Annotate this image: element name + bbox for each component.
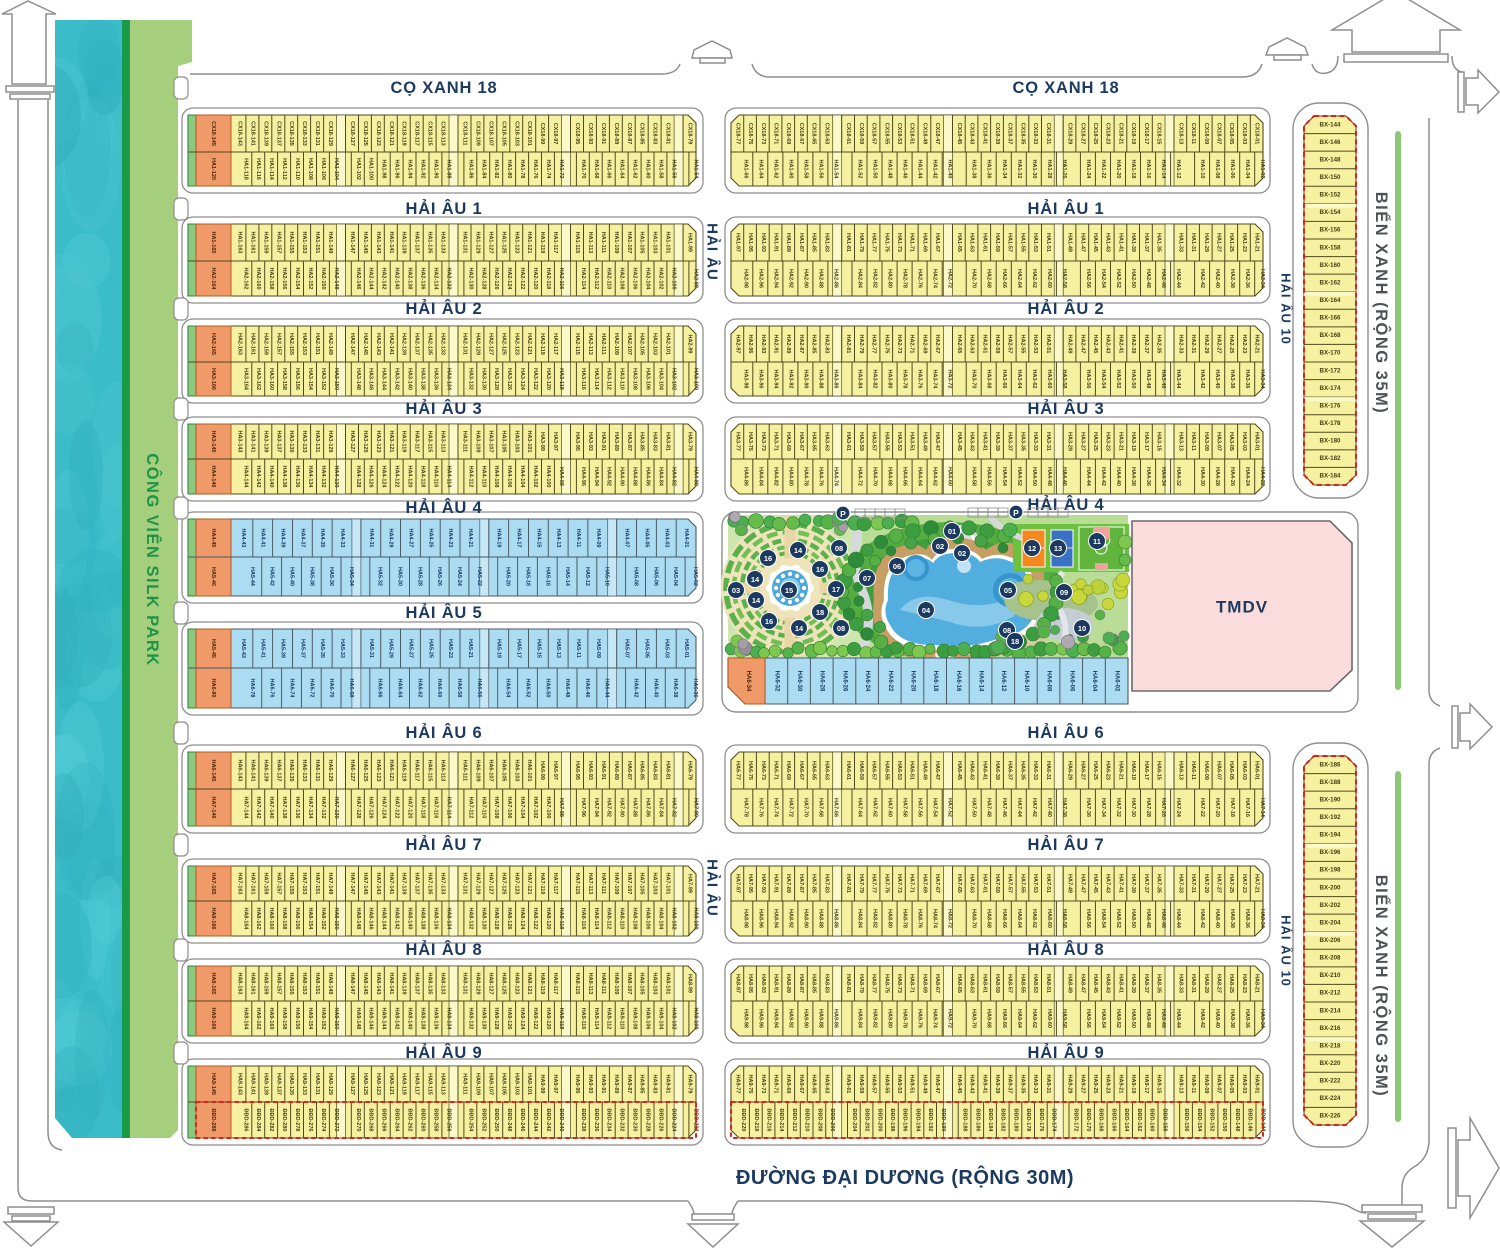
- svg-text:HA4-07: HA4-07: [624, 529, 630, 548]
- svg-text:HA1-83: HA1-83: [823, 233, 829, 252]
- svg-text:HA9-46: HA9-46: [1160, 1009, 1166, 1028]
- svg-text:HA3-90: HA3-90: [802, 370, 808, 389]
- svg-text:HA8-76: HA8-76: [917, 909, 923, 928]
- svg-text:HA5-22: HA5-22: [476, 567, 482, 586]
- svg-text:HA4-132: HA4-132: [320, 465, 326, 487]
- svg-text:HA9-11: HA9-11: [1190, 1075, 1196, 1094]
- svg-text:BX-220: BX-220: [1320, 1060, 1342, 1067]
- svg-text:HA1-62: HA1-62: [632, 160, 638, 179]
- svg-text:HA7-140: HA7-140: [268, 796, 274, 818]
- svg-text:HA5-06: HA5-06: [652, 567, 658, 586]
- svg-text:02: 02: [936, 542, 944, 551]
- svg-text:HA9-129: HA9-129: [327, 1073, 333, 1095]
- svg-text:HA9-57: HA9-57: [871, 1075, 877, 1094]
- svg-text:HA9-141: HA9-141: [249, 1073, 255, 1095]
- svg-text:HA1-33: HA1-33: [1177, 233, 1183, 252]
- svg-text:BX-158: BX-158: [1320, 244, 1342, 251]
- svg-text:HA2-88: HA2-88: [817, 269, 823, 288]
- svg-text:HA7-62: HA7-62: [872, 798, 878, 817]
- svg-text:HA1-74: HA1-74: [545, 160, 551, 180]
- svg-text:HA1-93: HA1-93: [760, 233, 766, 252]
- svg-text:HA9-17: HA9-17: [1143, 1075, 1149, 1094]
- svg-text:HA7-82: HA7-82: [670, 798, 676, 817]
- svg-text:HA9-110: HA9-110: [619, 1008, 625, 1030]
- svg-text:HA7-27: HA7-27: [1216, 874, 1222, 893]
- svg-text:HA3-80: HA3-80: [887, 370, 893, 389]
- svg-text:HA4-42: HA4-42: [1100, 467, 1106, 486]
- svg-text:BX-184: BX-184: [1320, 473, 1342, 480]
- svg-text:HA8-161: HA8-161: [249, 972, 255, 994]
- svg-text:HA4-116: HA4-116: [432, 466, 438, 488]
- svg-text:HA4-26: HA4-26: [1229, 467, 1235, 486]
- svg-text:HA1-34: HA1-34: [1001, 160, 1007, 180]
- svg-text:HA7-97: HA7-97: [734, 874, 740, 893]
- svg-text:HA7-112: HA7-112: [467, 797, 473, 819]
- svg-text:HA3-01: HA3-01: [1254, 432, 1260, 451]
- svg-text:HA7-21: HA7-21: [1254, 874, 1260, 893]
- svg-text:CX18-47: CX18-47: [934, 123, 940, 145]
- svg-text:HA2-25: HA2-25: [1228, 335, 1234, 354]
- svg-text:HA9-102: HA9-102: [670, 1007, 676, 1029]
- svg-text:HA8-67: HA8-67: [934, 974, 940, 993]
- svg-text:HA6-07: HA6-07: [1216, 761, 1222, 780]
- svg-text:HA2-115: HA2-115: [574, 333, 580, 355]
- svg-text:BX-168: BX-168: [1320, 332, 1342, 339]
- svg-text:CX18-27: CX18-27: [1079, 123, 1085, 145]
- svg-text:HA9-13: HA9-13: [1177, 1075, 1183, 1094]
- svg-text:HA1-66: HA1-66: [742, 160, 748, 179]
- svg-text:HA8-143: HA8-143: [375, 972, 381, 994]
- svg-text:HA2-29: HA2-29: [1203, 335, 1209, 354]
- svg-text:HA6-51: HA6-51: [909, 761, 915, 780]
- svg-text:HA9-140: HA9-140: [407, 1007, 413, 1029]
- svg-text:HA9-70: HA9-70: [971, 1009, 977, 1028]
- svg-text:HA8-126: HA8-126: [506, 907, 512, 929]
- svg-text:HA5-25: HA5-25: [427, 639, 433, 658]
- svg-text:HA7-139: HA7-139: [401, 872, 407, 894]
- svg-text:HA4-21: HA4-21: [467, 529, 473, 548]
- svg-text:HA9-106: HA9-106: [645, 1007, 651, 1029]
- svg-text:HA3-55: HA3-55: [883, 432, 889, 451]
- svg-text:HA7-90: HA7-90: [619, 798, 625, 817]
- svg-text:HA7-39: HA7-39: [1130, 874, 1136, 893]
- svg-text:HA1-153: HA1-153: [301, 231, 307, 253]
- svg-text:HA5-36: HA5-36: [328, 567, 334, 586]
- svg-text:HA6-105: HA6-105: [500, 759, 506, 781]
- svg-text:HA6-38: HA6-38: [672, 679, 678, 698]
- svg-text:HA4-66: HA4-66: [902, 467, 908, 486]
- svg-text:HA3-41: HA3-41: [981, 432, 987, 451]
- svg-text:09: 09: [1060, 588, 1068, 597]
- svg-text:HA8-80: HA8-80: [887, 909, 893, 928]
- svg-text:HA6-60: HA6-60: [436, 679, 442, 698]
- svg-text:HA1-73: HA1-73: [896, 233, 902, 252]
- svg-text:HA4-64: HA4-64: [917, 467, 923, 487]
- svg-text:HA8-148: HA8-148: [355, 907, 361, 929]
- svg-text:HA4-128: HA4-128: [355, 465, 361, 487]
- svg-text:HA1-71: HA1-71: [909, 233, 915, 252]
- svg-text:HA9-113: HA9-113: [440, 1073, 446, 1095]
- svg-text:HA4-46: HA4-46: [1061, 467, 1067, 486]
- svg-text:HA6-72: HA6-72: [308, 679, 314, 698]
- svg-text:HA6-43: HA6-43: [969, 761, 975, 780]
- svg-text:HA7-100: HA7-100: [545, 796, 551, 818]
- svg-text:HA8-84: HA8-84: [857, 909, 863, 929]
- svg-text:HA3-43: HA3-43: [969, 432, 975, 451]
- svg-text:HA3-56: HA3-56: [1085, 370, 1091, 389]
- svg-text:HA8-163: HA8-163: [237, 972, 243, 994]
- svg-text:HA3-95: HA3-95: [574, 432, 580, 451]
- svg-text:HA4-104: HA4-104: [519, 465, 525, 488]
- svg-text:HA3-29: HA3-29: [1067, 432, 1073, 451]
- svg-text:HA1-111: HA1-111: [600, 232, 606, 253]
- svg-text:HA3-124: HA3-124: [519, 368, 525, 391]
- svg-text:ĐĐD-278: ĐĐD-278: [294, 1109, 300, 1132]
- svg-text:HẢI ÂU 4: HẢI ÂU 4: [406, 498, 483, 517]
- svg-text:CX18-119: CX18-119: [401, 121, 407, 145]
- svg-text:13: 13: [1054, 544, 1062, 553]
- svg-text:HA3-25: HA3-25: [1092, 432, 1098, 451]
- svg-text:HA7-31: HA7-31: [1190, 874, 1196, 893]
- svg-text:HA6-70: HA6-70: [328, 679, 334, 698]
- svg-text:ĐĐD-272: ĐĐD-272: [333, 1109, 339, 1132]
- svg-text:HA7-151: HA7-151: [314, 872, 320, 894]
- svg-text:HA3-164: HA3-164: [242, 368, 248, 391]
- svg-text:CX18-55: CX18-55: [883, 123, 889, 145]
- svg-text:HA3-117: HA3-117: [414, 431, 420, 453]
- svg-text:HA5-37: HA5-37: [299, 639, 305, 658]
- svg-text:HA7-78: HA7-78: [742, 798, 748, 817]
- svg-text:HA2-165: HA2-165: [210, 333, 216, 355]
- svg-text:HA8-79: HA8-79: [858, 974, 864, 993]
- svg-text:HA1-25: HA1-25: [1228, 233, 1234, 252]
- svg-text:HA9-87: HA9-87: [626, 1075, 632, 1094]
- svg-text:ĐĐD-246: ĐĐD-246: [519, 1109, 525, 1132]
- svg-text:HA1-24: HA1-24: [1085, 160, 1091, 180]
- svg-text:HA1-67: HA1-67: [934, 233, 940, 252]
- svg-text:HA5-35: HA5-35: [319, 639, 325, 658]
- svg-text:CX18-49: CX18-49: [921, 123, 927, 145]
- svg-text:HA9-105: HA9-105: [500, 1073, 506, 1095]
- svg-text:HA2-150: HA2-150: [320, 267, 326, 289]
- svg-text:HA9-148: HA9-148: [355, 1007, 361, 1029]
- svg-text:HA2-130: HA2-130: [467, 267, 473, 289]
- svg-text:HA3-98: HA3-98: [742, 370, 748, 389]
- svg-text:HA4-05: HA4-05: [644, 529, 650, 548]
- svg-text:HA8-144: HA8-144: [381, 907, 387, 930]
- svg-text:HA2-85: HA2-85: [811, 335, 817, 354]
- svg-text:HA2-33: HA2-33: [1177, 335, 1183, 354]
- svg-text:HA4-136: HA4-136: [294, 465, 300, 487]
- svg-text:BIỂN XANH (RỘNG 35M): BIỂN XANH (RỘNG 35M): [1372, 192, 1391, 415]
- svg-text:HA7-87: HA7-87: [798, 874, 804, 893]
- svg-text:HA8-43: HA8-43: [1105, 974, 1111, 993]
- svg-text:BX-216: BX-216: [1320, 1025, 1342, 1032]
- svg-text:HA8-103: HA8-103: [652, 972, 658, 994]
- svg-text:HA3-146: HA3-146: [368, 368, 374, 390]
- svg-text:HA9-150: HA9-150: [333, 1007, 339, 1029]
- svg-text:ĐĐD-252: ĐĐD-252: [480, 1109, 486, 1132]
- svg-text:HA2-125: HA2-125: [500, 333, 506, 355]
- svg-text:HA9-25: HA9-25: [1092, 1075, 1098, 1094]
- svg-text:HA7-111: HA7-111: [600, 873, 606, 894]
- svg-text:HA3-23: HA3-23: [1105, 432, 1111, 451]
- svg-text:HA8-160: HA8-160: [268, 907, 274, 929]
- svg-text:HA6-15: HA6-15: [1156, 761, 1162, 780]
- svg-text:HA6-87: HA6-87: [626, 761, 632, 780]
- svg-text:HA8-100: HA8-100: [692, 907, 698, 929]
- svg-text:ĐĐD-210: ĐĐD-210: [804, 1109, 810, 1132]
- svg-text:HA3-107: HA3-107: [487, 430, 493, 452]
- svg-text:HA5-03: HA5-03: [663, 639, 669, 658]
- svg-text:HA5-11: HA5-11: [575, 639, 581, 658]
- svg-text:ĐĐD-200: ĐĐD-200: [876, 1109, 882, 1132]
- svg-text:HA5-12: HA5-12: [584, 567, 590, 586]
- svg-text:HA3-31: HA3-31: [1045, 432, 1051, 451]
- svg-text:CX18-127: CX18-127: [349, 121, 355, 146]
- svg-text:CX18-39: CX18-39: [994, 123, 1000, 145]
- svg-text:HA9-45: HA9-45: [956, 1075, 962, 1094]
- svg-text:HA7-79: HA7-79: [858, 874, 864, 893]
- svg-text:HA1-149: HA1-149: [327, 231, 333, 253]
- svg-text:HA1-121: HA1-121: [526, 231, 532, 253]
- svg-text:HA4-36: HA4-36: [1145, 467, 1151, 486]
- svg-text:BX-224: BX-224: [1320, 1095, 1342, 1102]
- svg-text:ĐĐD-232: ĐĐD-232: [619, 1109, 625, 1132]
- svg-text:HA3-77: HA3-77: [734, 432, 740, 451]
- svg-text:HA1-102: HA1-102: [355, 158, 361, 180]
- svg-text:HA8-152: HA8-152: [320, 907, 326, 929]
- svg-text:HA2-105: HA2-105: [639, 333, 645, 355]
- svg-text:HA8-68: HA8-68: [986, 909, 992, 928]
- svg-text:HA4-60: HA4-60: [947, 467, 953, 486]
- svg-text:CX18-09: CX18-09: [1203, 123, 1209, 145]
- svg-text:HA3-92: HA3-92: [787, 370, 793, 389]
- svg-text:HA4-120: HA4-120: [407, 465, 413, 487]
- svg-text:HA8-124: HA8-124: [519, 907, 525, 930]
- svg-text:HA8-65: HA8-65: [956, 974, 962, 993]
- svg-text:HẢI ÂU: HẢI ÂU: [704, 223, 722, 281]
- svg-text:HA7-60: HA7-60: [887, 798, 893, 817]
- svg-text:CX18-107: CX18-107: [487, 121, 493, 146]
- svg-text:HA3-116: HA3-116: [580, 368, 586, 390]
- svg-text:HA9-19: HA9-19: [1130, 1075, 1136, 1094]
- svg-text:HA8-123: HA8-123: [513, 972, 519, 994]
- svg-text:HA2-27: HA2-27: [1216, 335, 1222, 354]
- svg-text:HA5-18: HA5-18: [525, 567, 531, 586]
- svg-text:HA3-84: HA3-84: [857, 370, 863, 390]
- svg-text:HA7-40: HA7-40: [1046, 798, 1052, 817]
- svg-text:HA6-61: HA6-61: [845, 761, 851, 780]
- svg-text:02: 02: [958, 549, 966, 558]
- svg-text:HA4-76: HA4-76: [817, 467, 823, 486]
- svg-text:HA8-138: HA8-138: [420, 907, 426, 929]
- svg-text:01: 01: [948, 527, 956, 536]
- svg-text:HA3-86: HA3-86: [833, 370, 839, 389]
- svg-text:HA5-24: HA5-24: [456, 567, 462, 587]
- svg-text:HA8-154: HA8-154: [307, 907, 313, 930]
- svg-text:HA2-54: HA2-54: [1100, 269, 1106, 289]
- svg-text:HA1-36: HA1-36: [986, 160, 992, 179]
- svg-text:HA4-146: HA4-146: [210, 465, 216, 487]
- svg-text:HA9-56: HA9-56: [1085, 1009, 1091, 1028]
- svg-text:HA1-02: HA1-02: [1259, 160, 1265, 179]
- svg-text:CỌ XANH 18: CỌ XANH 18: [1012, 79, 1119, 97]
- svg-text:HA4-56: HA4-56: [986, 467, 992, 486]
- svg-text:HA2-111: HA2-111: [600, 333, 606, 354]
- svg-text:HA4-27: HA4-27: [408, 529, 414, 548]
- svg-text:ĐĐD-160: ĐĐD-160: [1149, 1109, 1155, 1132]
- svg-text:HA4-43: HA4-43: [240, 529, 246, 548]
- svg-text:CX18-53: CX18-53: [896, 123, 902, 145]
- svg-text:HA7-54: HA7-54: [932, 798, 938, 818]
- svg-text:HA3-100: HA3-100: [692, 368, 698, 390]
- svg-text:HA2-141: HA2-141: [388, 333, 394, 355]
- svg-text:15: 15: [785, 586, 793, 595]
- svg-text:HA9-131: HA9-131: [314, 1073, 320, 1095]
- svg-text:HA7-92: HA7-92: [606, 798, 612, 817]
- svg-text:HA1-54: HA1-54: [692, 160, 698, 180]
- svg-text:ĐĐD-212: ĐĐD-212: [791, 1109, 797, 1132]
- svg-text:HA6-13: HA6-13: [1177, 761, 1183, 780]
- svg-text:HA9-144: HA9-144: [381, 1007, 387, 1030]
- svg-text:BX-152: BX-152: [1320, 192, 1342, 199]
- svg-text:HA2-120: HA2-120: [532, 267, 538, 289]
- svg-text:HA2-102: HA2-102: [658, 267, 664, 289]
- svg-text:HA8-81: HA8-81: [845, 974, 851, 993]
- svg-text:HA6-91: HA6-91: [600, 761, 606, 780]
- svg-text:HA8-104: HA8-104: [658, 907, 664, 930]
- svg-text:BX-214: BX-214: [1320, 1007, 1342, 1014]
- svg-text:HA9-98: HA9-98: [742, 1009, 748, 1028]
- svg-text:HA1-44: HA1-44: [917, 160, 923, 180]
- svg-text:HA5-21: HA5-21: [467, 639, 473, 658]
- svg-text:HA8-165: HA8-165: [210, 972, 216, 994]
- svg-text:HA8-66: HA8-66: [1001, 909, 1007, 928]
- svg-text:HA9-125: HA9-125: [362, 1073, 368, 1095]
- svg-text:HA7-43: HA7-43: [1105, 874, 1111, 893]
- svg-text:CX18-43: CX18-43: [969, 123, 975, 145]
- svg-text:HA6-57: HA6-57: [871, 761, 877, 780]
- svg-text:HA5-10: HA5-10: [604, 567, 610, 586]
- svg-text:HA1-43: HA1-43: [1105, 233, 1111, 252]
- svg-text:CX18-33: CX18-33: [1032, 123, 1038, 145]
- svg-text:HA2-118: HA2-118: [545, 268, 551, 290]
- svg-text:HA2-53: HA2-53: [1032, 335, 1038, 354]
- svg-text:HA2-91: HA2-91: [773, 335, 779, 354]
- svg-text:HA1-89: HA1-89: [785, 233, 791, 252]
- svg-text:HA6-64: HA6-64: [397, 679, 403, 699]
- svg-text:HA9-39: HA9-39: [994, 1075, 1000, 1094]
- svg-text:HA8-64: HA8-64: [1016, 909, 1022, 929]
- svg-text:HA3-137: HA3-137: [275, 430, 281, 452]
- svg-text:HA3-54: HA3-54: [1100, 370, 1106, 390]
- svg-text:HA9-107: HA9-107: [487, 1073, 493, 1095]
- svg-text:BX-206: BX-206: [1320, 937, 1342, 944]
- svg-text:HA4-98: HA4-98: [558, 467, 564, 486]
- svg-text:HA3-59: HA3-59: [858, 432, 864, 451]
- svg-text:HA3-27: HA3-27: [1079, 432, 1085, 451]
- svg-text:HA4-15: HA4-15: [535, 529, 541, 548]
- svg-text:HA4-13: HA4-13: [555, 529, 561, 548]
- svg-text:HẢI ÂU 1: HẢI ÂU 1: [1028, 199, 1105, 218]
- svg-text:HA8-166: HA8-166: [210, 907, 216, 929]
- svg-text:HA4-50: HA4-50: [1031, 467, 1037, 486]
- svg-text:HA6-54: HA6-54: [505, 679, 511, 699]
- svg-text:HA1-60: HA1-60: [645, 160, 651, 179]
- svg-text:HA2-73: HA2-73: [896, 335, 902, 354]
- svg-text:HA9-44: HA9-44: [1175, 1009, 1181, 1029]
- svg-text:HA8-33: HA8-33: [1177, 974, 1183, 993]
- svg-text:14: 14: [795, 624, 804, 633]
- svg-text:HA1-69: HA1-69: [921, 233, 927, 252]
- svg-text:ĐĐD-174: ĐĐD-174: [1051, 1109, 1057, 1133]
- svg-text:HA8-131: HA8-131: [462, 972, 468, 994]
- svg-text:HA9-58: HA9-58: [1061, 1009, 1067, 1028]
- svg-text:HA4-86: HA4-86: [742, 467, 748, 486]
- svg-text:HA1-163: HA1-163: [237, 231, 243, 253]
- svg-text:HA4-82: HA4-82: [772, 467, 778, 486]
- svg-text:HA3-57: HA3-57: [871, 432, 877, 451]
- svg-text:HA1-70: HA1-70: [580, 160, 586, 179]
- svg-text:HA9-136: HA9-136: [432, 1007, 438, 1029]
- svg-text:HA3-03: HA3-03: [1241, 432, 1247, 451]
- svg-text:HA7-96: HA7-96: [580, 798, 586, 817]
- svg-text:HA2-59: HA2-59: [994, 335, 1000, 354]
- svg-text:HA8-147: HA8-147: [349, 972, 355, 994]
- svg-text:ĐĐD-178: ĐĐD-178: [1025, 1109, 1031, 1132]
- svg-text:ĐĐD-242: ĐĐD-242: [545, 1109, 551, 1132]
- svg-text:HA1-37: HA1-37: [1143, 233, 1149, 252]
- svg-text:HA7-147: HA7-147: [349, 872, 355, 894]
- svg-text:HA9-66: HA9-66: [1001, 1009, 1007, 1028]
- svg-text:HA6-139: HA6-139: [262, 759, 268, 781]
- svg-text:ĐĐD-286: ĐĐD-286: [242, 1109, 248, 1132]
- svg-text:HA7-51: HA7-51: [1045, 874, 1051, 893]
- svg-text:HA8-57: HA8-57: [1007, 974, 1013, 993]
- svg-text:BX-212: BX-212: [1320, 990, 1342, 997]
- svg-text:HA8-156: HA8-156: [294, 907, 300, 929]
- svg-text:HA8-106: HA8-106: [645, 907, 651, 929]
- svg-text:HA8-35: HA8-35: [1156, 974, 1162, 993]
- svg-text:HA9-83: HA9-83: [652, 1075, 658, 1094]
- svg-text:HA2-46: HA2-46: [1160, 269, 1166, 288]
- svg-text:HA2-77: HA2-77: [871, 335, 877, 354]
- svg-text:HA9-52: HA9-52: [1115, 1009, 1121, 1028]
- svg-text:HA3-64: HA3-64: [1016, 370, 1022, 390]
- svg-text:HA9-49: HA9-49: [921, 1075, 927, 1094]
- svg-text:HA9-40: HA9-40: [1214, 1009, 1220, 1028]
- svg-text:HA1-29: HA1-29: [1203, 233, 1209, 252]
- svg-text:HA9-93: HA9-93: [587, 1075, 593, 1094]
- svg-text:HA7-95: HA7-95: [747, 874, 753, 893]
- svg-text:HA1-117: HA1-117: [552, 232, 558, 254]
- svg-text:HA9-108: HA9-108: [632, 1007, 638, 1029]
- svg-text:HA1-95: HA1-95: [747, 233, 753, 252]
- svg-text:HẢI ÂU 6: HẢI ÂU 6: [1028, 723, 1105, 742]
- svg-text:HA4-48: HA4-48: [1046, 467, 1052, 486]
- svg-text:HA7-41: HA7-41: [1118, 874, 1124, 893]
- svg-text:HA7-57: HA7-57: [1007, 874, 1013, 893]
- svg-text:HA3-127: HA3-127: [349, 430, 355, 452]
- svg-text:HA7-74: HA7-74: [772, 798, 778, 818]
- svg-text:HA3-88: HA3-88: [817, 370, 823, 389]
- svg-text:HA8-69: HA8-69: [921, 974, 927, 993]
- svg-text:HA1-109: HA1-109: [613, 231, 619, 253]
- svg-text:HA6-29: HA6-29: [1067, 761, 1073, 780]
- svg-text:HA2-75: HA2-75: [883, 335, 889, 354]
- svg-text:HA6-46: HA6-46: [584, 679, 590, 698]
